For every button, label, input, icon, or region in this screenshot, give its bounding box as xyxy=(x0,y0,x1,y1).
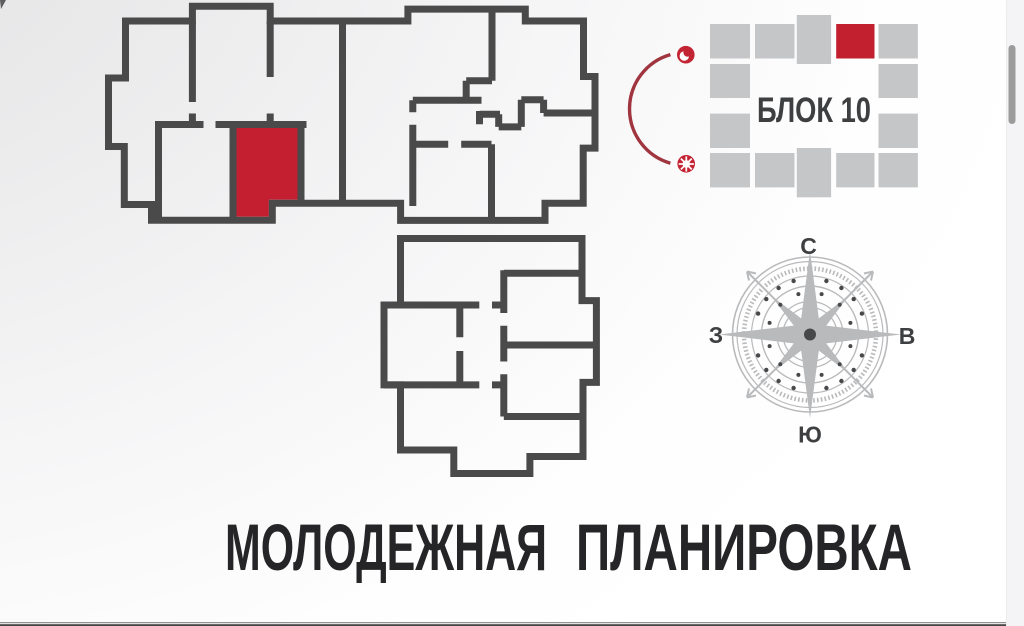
svg-text:ПЛАНИРОВКА: ПЛАНИРОВКА xyxy=(576,510,912,584)
svg-text:МОЛОДЕЖНАЯ: МОЛОДЕЖНАЯ xyxy=(225,510,547,584)
svg-text:В: В xyxy=(899,323,916,349)
svg-text:БЛОК 10: БЛОК 10 xyxy=(757,91,871,130)
svg-text:С: С xyxy=(800,233,817,259)
svg-text:Ю: Ю xyxy=(798,422,822,448)
svg-text:З: З xyxy=(709,322,723,348)
